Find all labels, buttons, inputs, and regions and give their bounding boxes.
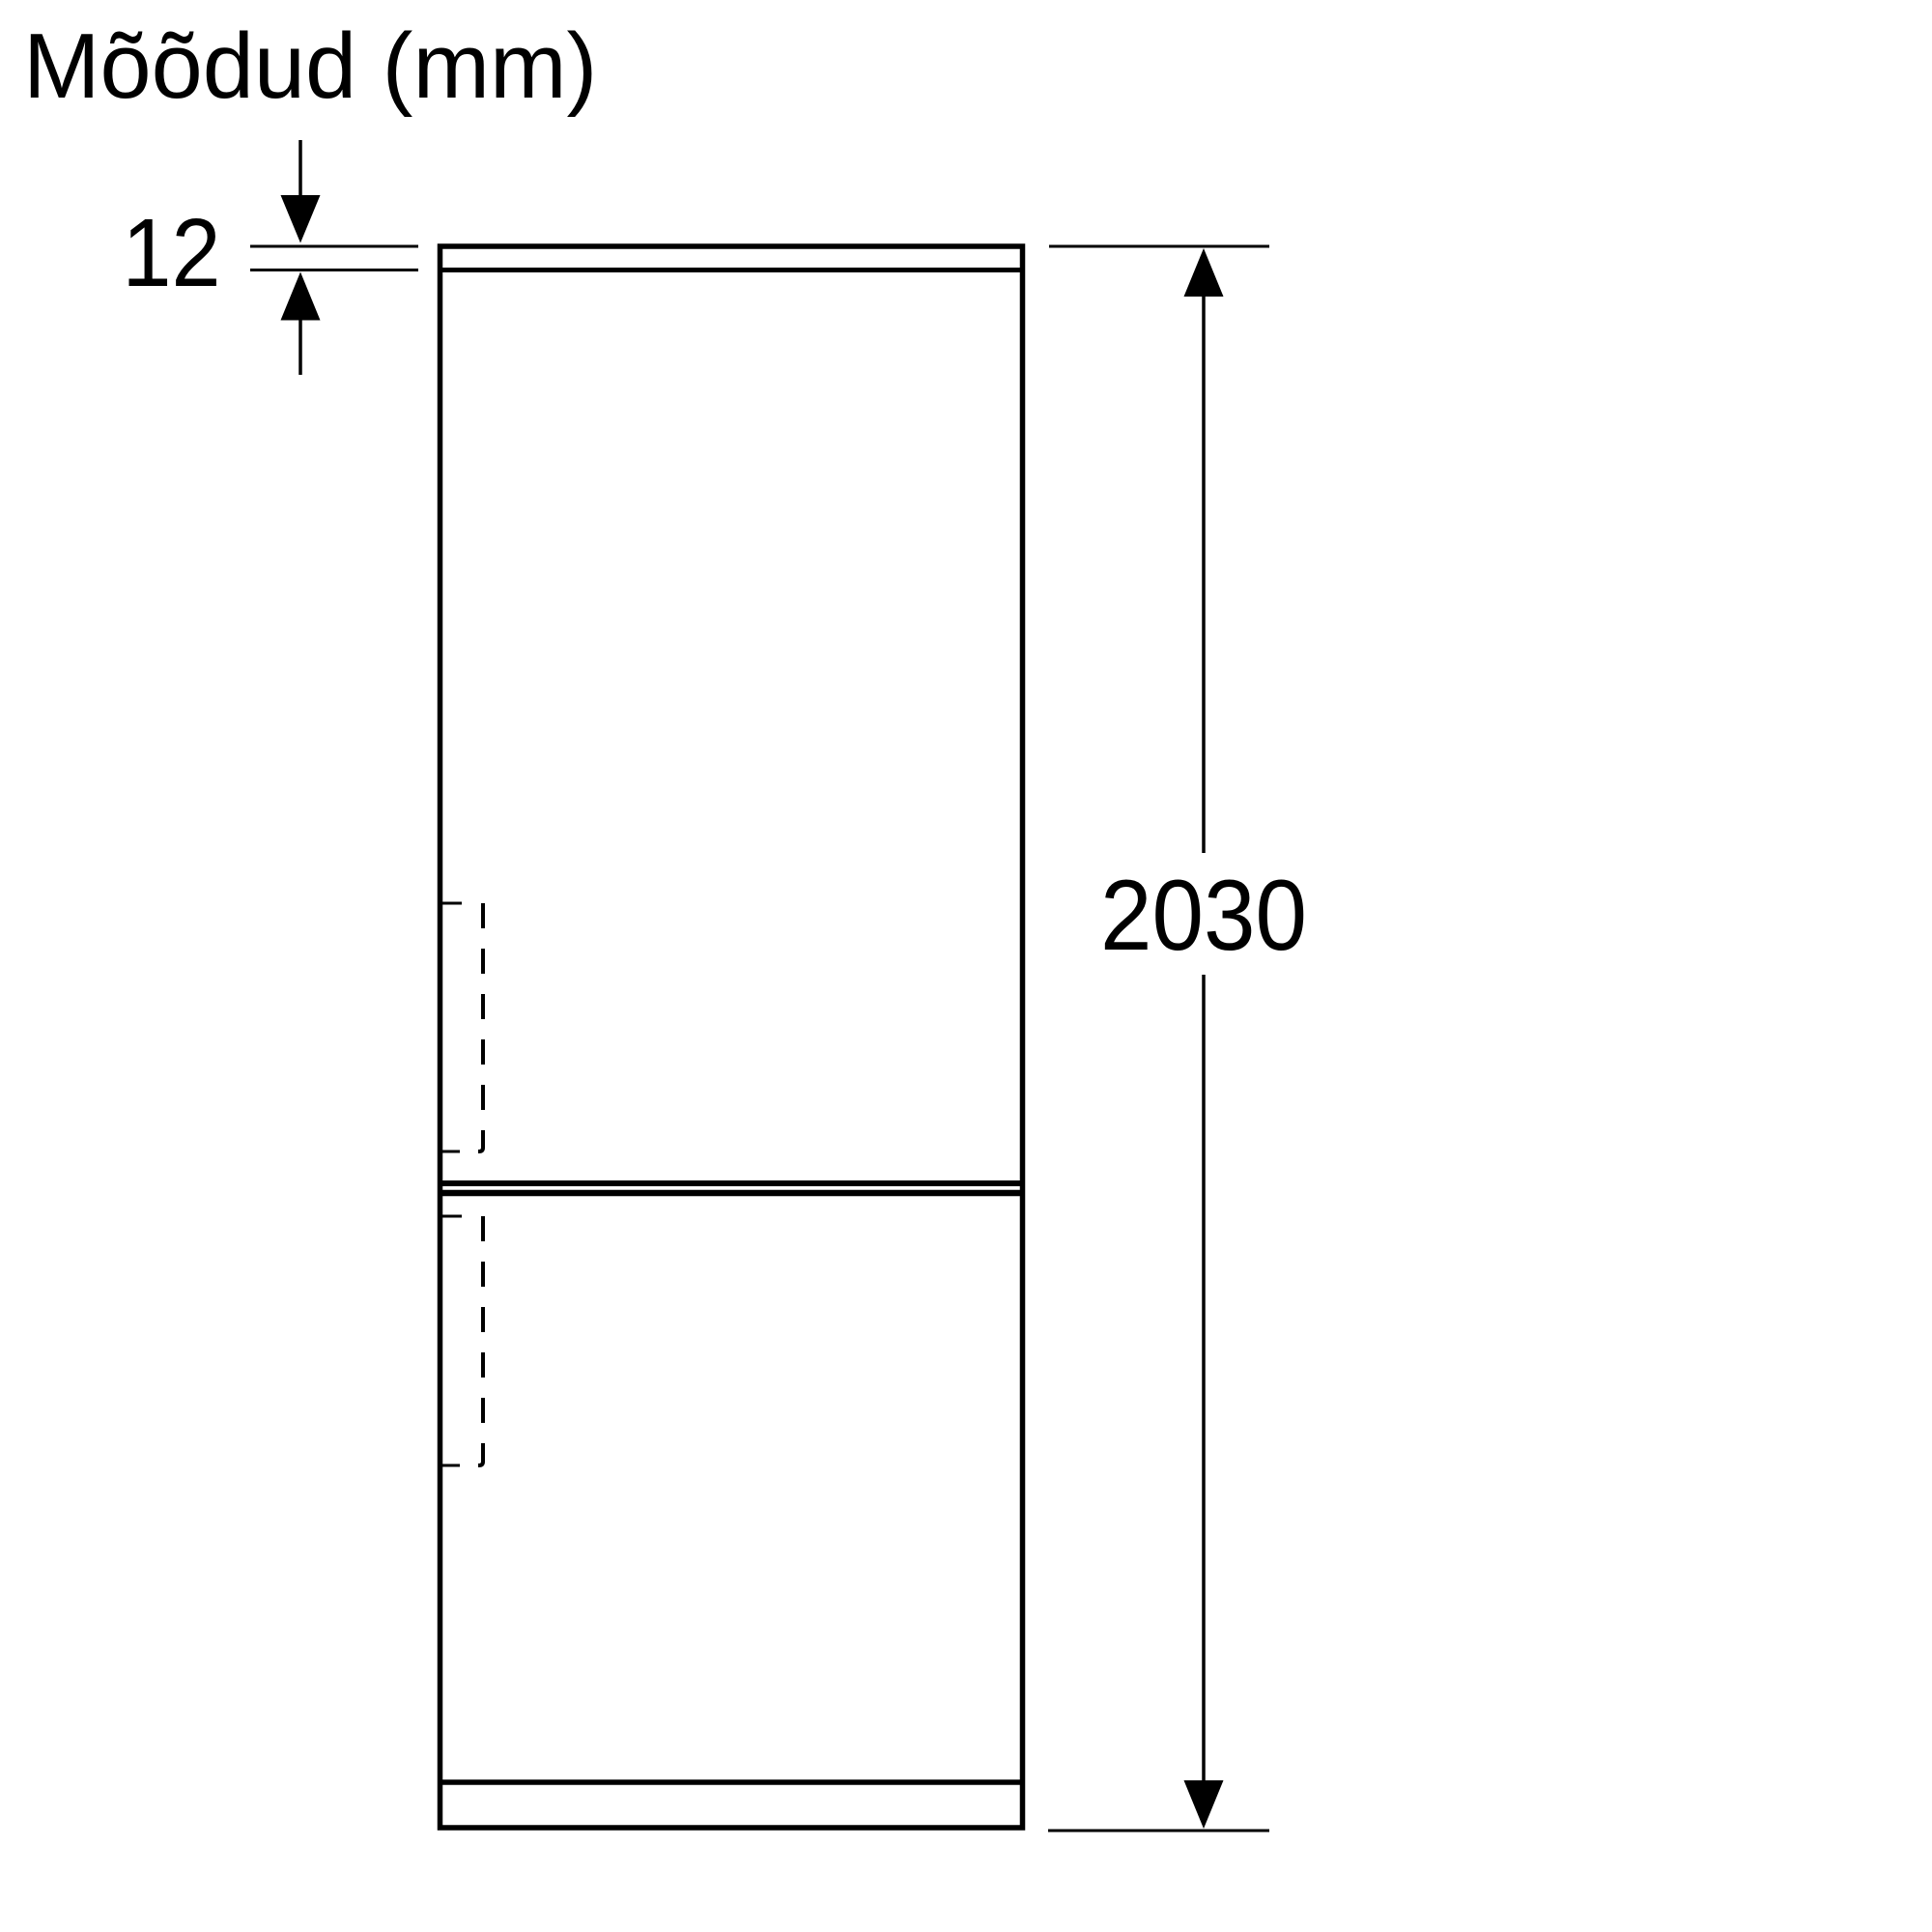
svg-text:2030: 2030 bbox=[1100, 860, 1307, 972]
svg-text:12: 12 bbox=[123, 199, 221, 307]
svg-text:Mõõdud (mm): Mõõdud (mm) bbox=[23, 15, 597, 118]
